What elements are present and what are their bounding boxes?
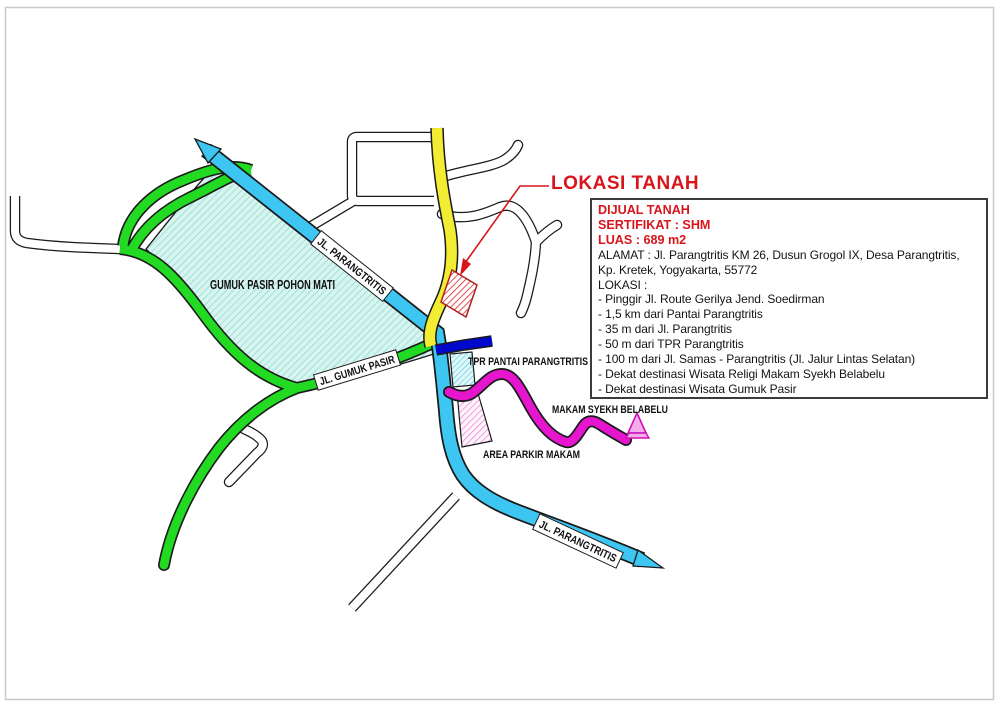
info-lokasi-heading: LOKASI : bbox=[598, 278, 980, 293]
map-page: JL. PARANGTRITIS JL. GUMUK PASIR JL. PAR… bbox=[0, 0, 1000, 706]
makam-monument-icon bbox=[626, 413, 649, 438]
info-alamat-line2: Kp. Kretek, Yogyakarta, 55772 bbox=[598, 263, 980, 278]
road-diagonal-south bbox=[352, 496, 456, 608]
info-dijual: DIJUAL TANAH bbox=[598, 203, 980, 218]
info-lokasi-item: - 100 m dari Jl. Samas - Parangtritis (J… bbox=[598, 352, 980, 367]
road-ring-loop bbox=[352, 137, 434, 201]
listing-info-box: DIJUAL TANAH SERTIFIKAT : SHM LUAS : 689… bbox=[590, 198, 988, 399]
label-makam: MAKAM SYEKH BELABELU bbox=[552, 404, 668, 416]
page-title: LOKASI TANAH bbox=[551, 173, 699, 195]
info-lokasi-item: - 1,5 km dari Pantai Parangtritis bbox=[598, 307, 980, 322]
info-lokasi-item: - Dekat destinasi Wisata Gumuk Pasir bbox=[598, 382, 980, 397]
info-lokasi-item: - Pinggir Jl. Route Gerilya Jend. Soedir… bbox=[598, 292, 980, 307]
plot-arrowhead-icon bbox=[460, 258, 471, 276]
road-parangtritis-south-tip bbox=[633, 550, 663, 568]
road-hook-west bbox=[15, 196, 120, 249]
label-tpr: TPR PANTAI PARANGTRITIS bbox=[468, 356, 588, 368]
info-alamat-line1: ALAMAT : Jl. Parangtritis KM 26, Dusun G… bbox=[598, 248, 980, 263]
info-sertifikat: SERTIFIKAT : SHM bbox=[598, 218, 980, 233]
info-lokasi-item: - Dekat destinasi Wisata Religi Makam Sy… bbox=[598, 367, 980, 382]
info-luas: LUAS : 689 m2 bbox=[598, 233, 980, 248]
info-lokasi-item: - 35 m dari Jl. Parangtritis bbox=[598, 322, 980, 337]
info-lokasi-item: - 50 m dari TPR Parangtritis bbox=[598, 337, 980, 352]
label-gumuk-pasir-area: GUMUK PASIR POHON MATI bbox=[210, 278, 335, 292]
label-area-parkir: AREA PARKIR MAKAM bbox=[483, 449, 580, 461]
road-hook-north bbox=[446, 145, 518, 176]
